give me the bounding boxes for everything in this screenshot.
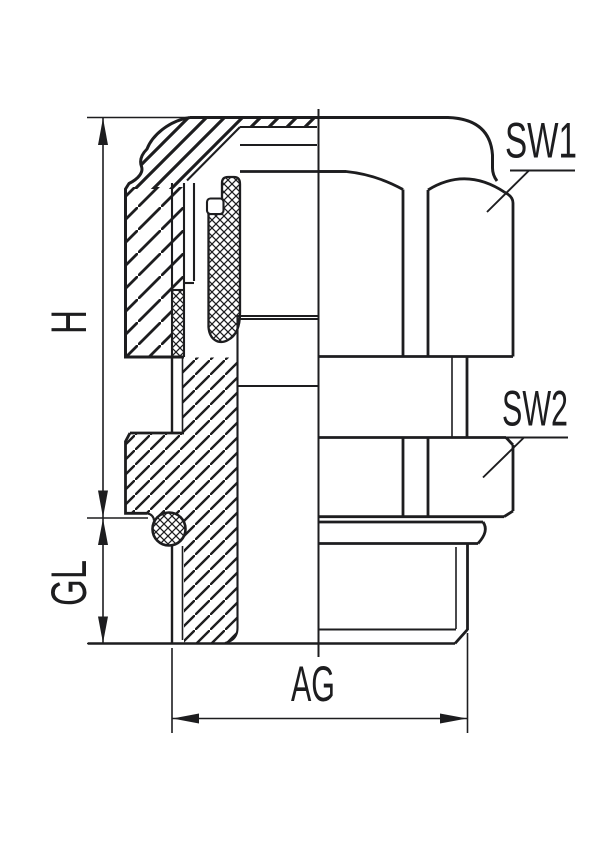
label-gl: GL (41, 560, 97, 606)
insert-notch (207, 199, 224, 215)
ag-arrow-right-icon (440, 714, 467, 724)
label-sw2: SW2 (502, 381, 568, 437)
label-h: H (41, 310, 97, 334)
washer-disc (318, 522, 485, 544)
sw1-leader (487, 171, 575, 213)
sw2-leader (483, 438, 568, 478)
h-arrow-up-icon (98, 118, 108, 145)
seal-strip-mesh (172, 290, 184, 357)
seal-basket (207, 177, 240, 342)
neck-thread (452, 357, 467, 438)
label-ag: AG (291, 656, 335, 712)
gl-arrow-down-icon (98, 617, 108, 644)
ag-arrow-left-icon (173, 714, 200, 724)
hex-nut-sw1 (318, 172, 513, 357)
cable-gland-drawing: SW1 SW2 H GL AG (0, 0, 613, 845)
bore-lines (225, 316, 318, 643)
cap-dome-hatch (126, 118, 318, 190)
connection-thread (319, 544, 468, 644)
label-sw1: SW1 (505, 113, 577, 169)
gl-arrow-up-icon (98, 519, 108, 546)
technical-drawing-canvas: SW1 SW2 H GL AG (0, 0, 613, 845)
h-arrow-down-icon (98, 491, 108, 518)
cap-nut-section (126, 118, 498, 358)
body-section (88, 316, 455, 644)
o-ring (153, 513, 186, 546)
exterior-view (318, 109, 513, 657)
